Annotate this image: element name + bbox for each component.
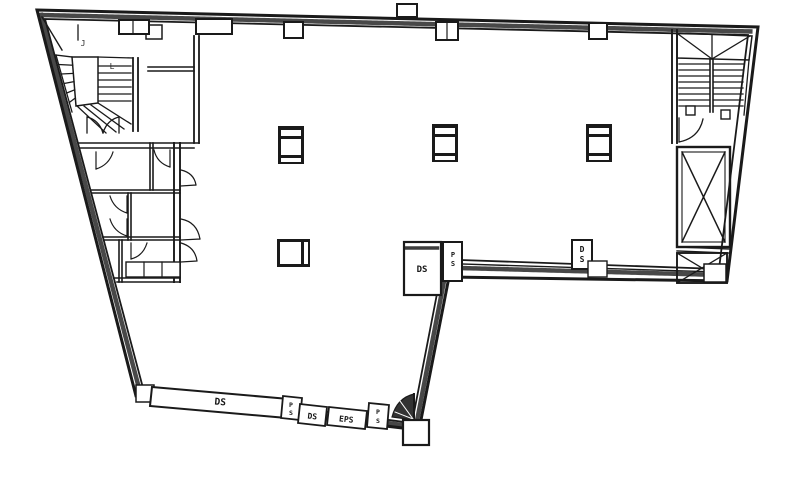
pipe-shaft-corner-box — [367, 403, 389, 429]
label-pipe-shaft-mid-p: P — [451, 251, 455, 259]
label-pipe-shaft-long-s: S — [289, 409, 293, 417]
label-pipe-shaft-long-p: P — [289, 401, 293, 409]
fixture-counter — [126, 262, 180, 277]
corner-post-bottom — [403, 420, 429, 445]
column-b — [432, 124, 458, 162]
label-duct-shaft-small: DS — [307, 412, 318, 422]
column-c — [586, 124, 612, 162]
floor-plan-sheet: J L — [0, 0, 787, 482]
label-pipe-shaft-corner-p: P — [376, 408, 380, 416]
floor-plan-drawing: J L — [0, 0, 787, 482]
column-a — [278, 126, 304, 164]
label-duct-shaft-east-s: S — [580, 255, 585, 264]
stair-newel-left — [686, 106, 695, 115]
stair-mark-l: L — [110, 62, 115, 71]
paper-background — [0, 0, 787, 482]
stair-newel-right — [721, 110, 730, 119]
label-pipe-shaft-corner-s: S — [376, 417, 380, 425]
label-eps: EPS — [339, 414, 354, 424]
label-duct-shaft-long: DS — [214, 397, 227, 409]
label-duct-shaft-east-d: D — [580, 245, 585, 254]
column-d — [277, 239, 310, 267]
stair-mark-j: J — [81, 39, 86, 48]
east-shaft-notch — [588, 261, 607, 277]
label-duct-shaft-mid: DS — [417, 265, 428, 275]
label-pipe-shaft-mid-s: S — [451, 260, 455, 268]
shaft-notch-box — [704, 264, 726, 282]
